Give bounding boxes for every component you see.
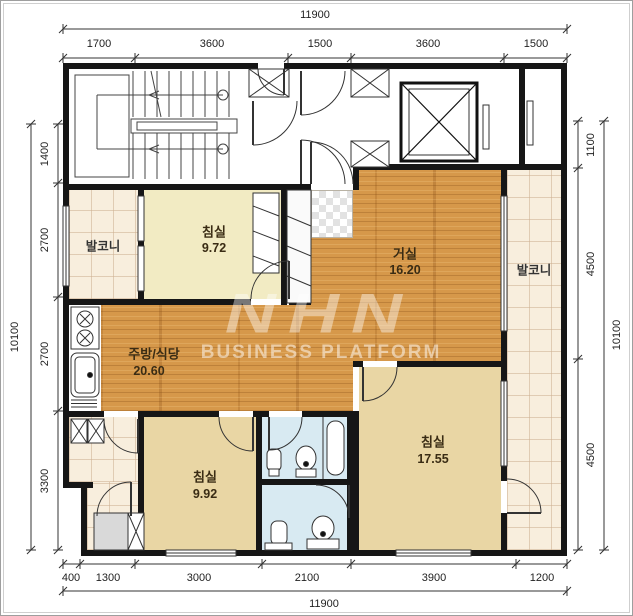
shaft-boxes (71, 69, 389, 550)
dim-left-seg-2: 2700 (39, 228, 51, 252)
dim-bottom-seg-6: 1200 (530, 572, 554, 584)
bedroom-top-label: 침실 (202, 222, 226, 241)
bedroom-bottom-area: 9.92 (193, 487, 217, 501)
stairs (75, 71, 237, 179)
bedroom-bottom-label: 침실 (193, 467, 217, 486)
dim-top-seg-1: 1700 (87, 38, 111, 50)
dim-left-seg-1: 1400 (39, 142, 51, 166)
dim-bottom-seg-1: 400 (62, 572, 80, 584)
dim-bottom-seg-4: 2100 (295, 572, 319, 584)
dim-right-seg-3: 4500 (585, 443, 597, 467)
dim-top-seg-5: 1500 (524, 38, 548, 50)
walls (63, 63, 567, 556)
elevator (401, 83, 489, 161)
dim-top-seg-3: 1500 (308, 38, 332, 50)
dim-left-seg-3: 2700 (39, 342, 51, 366)
bedroom-right-label: 침실 (421, 432, 445, 451)
dim-left-total: 10100 (9, 322, 21, 353)
dim-top-seg-4: 3600 (416, 38, 440, 50)
dim-top-total: 11900 (300, 9, 330, 21)
dim-left-seg-4: 3300 (39, 469, 51, 493)
dim-top-seg-2: 3600 (200, 38, 224, 50)
balcony-right-label: 발코니 (517, 260, 552, 279)
kitchen-label: 주방/식당 (128, 344, 179, 363)
dim-right-seg-2: 4500 (585, 252, 597, 276)
dim-bottom-seg-3: 3000 (187, 572, 211, 584)
kitchen-fixtures (71, 307, 99, 407)
dim-bottom-total: 11900 (309, 598, 339, 610)
bedroom-right-area: 17.55 (417, 452, 448, 466)
living-label: 거실 (393, 244, 417, 263)
dim-right-total: 10100 (611, 320, 623, 351)
dim-right-seg-1: 1100 (585, 133, 597, 157)
floorplan-canvas: 11900 1700 3600 1500 3600 1500 400 1300 … (0, 0, 633, 616)
kitchen-area: 20.60 (133, 364, 164, 378)
dim-bottom-seg-5: 3900 (422, 572, 446, 584)
balcony-left-label: 발코니 (86, 236, 121, 255)
dim-bottom-seg-2: 1300 (96, 572, 120, 584)
living-area: 16.20 (389, 263, 420, 277)
bedroom-top-area: 9.72 (202, 241, 226, 255)
